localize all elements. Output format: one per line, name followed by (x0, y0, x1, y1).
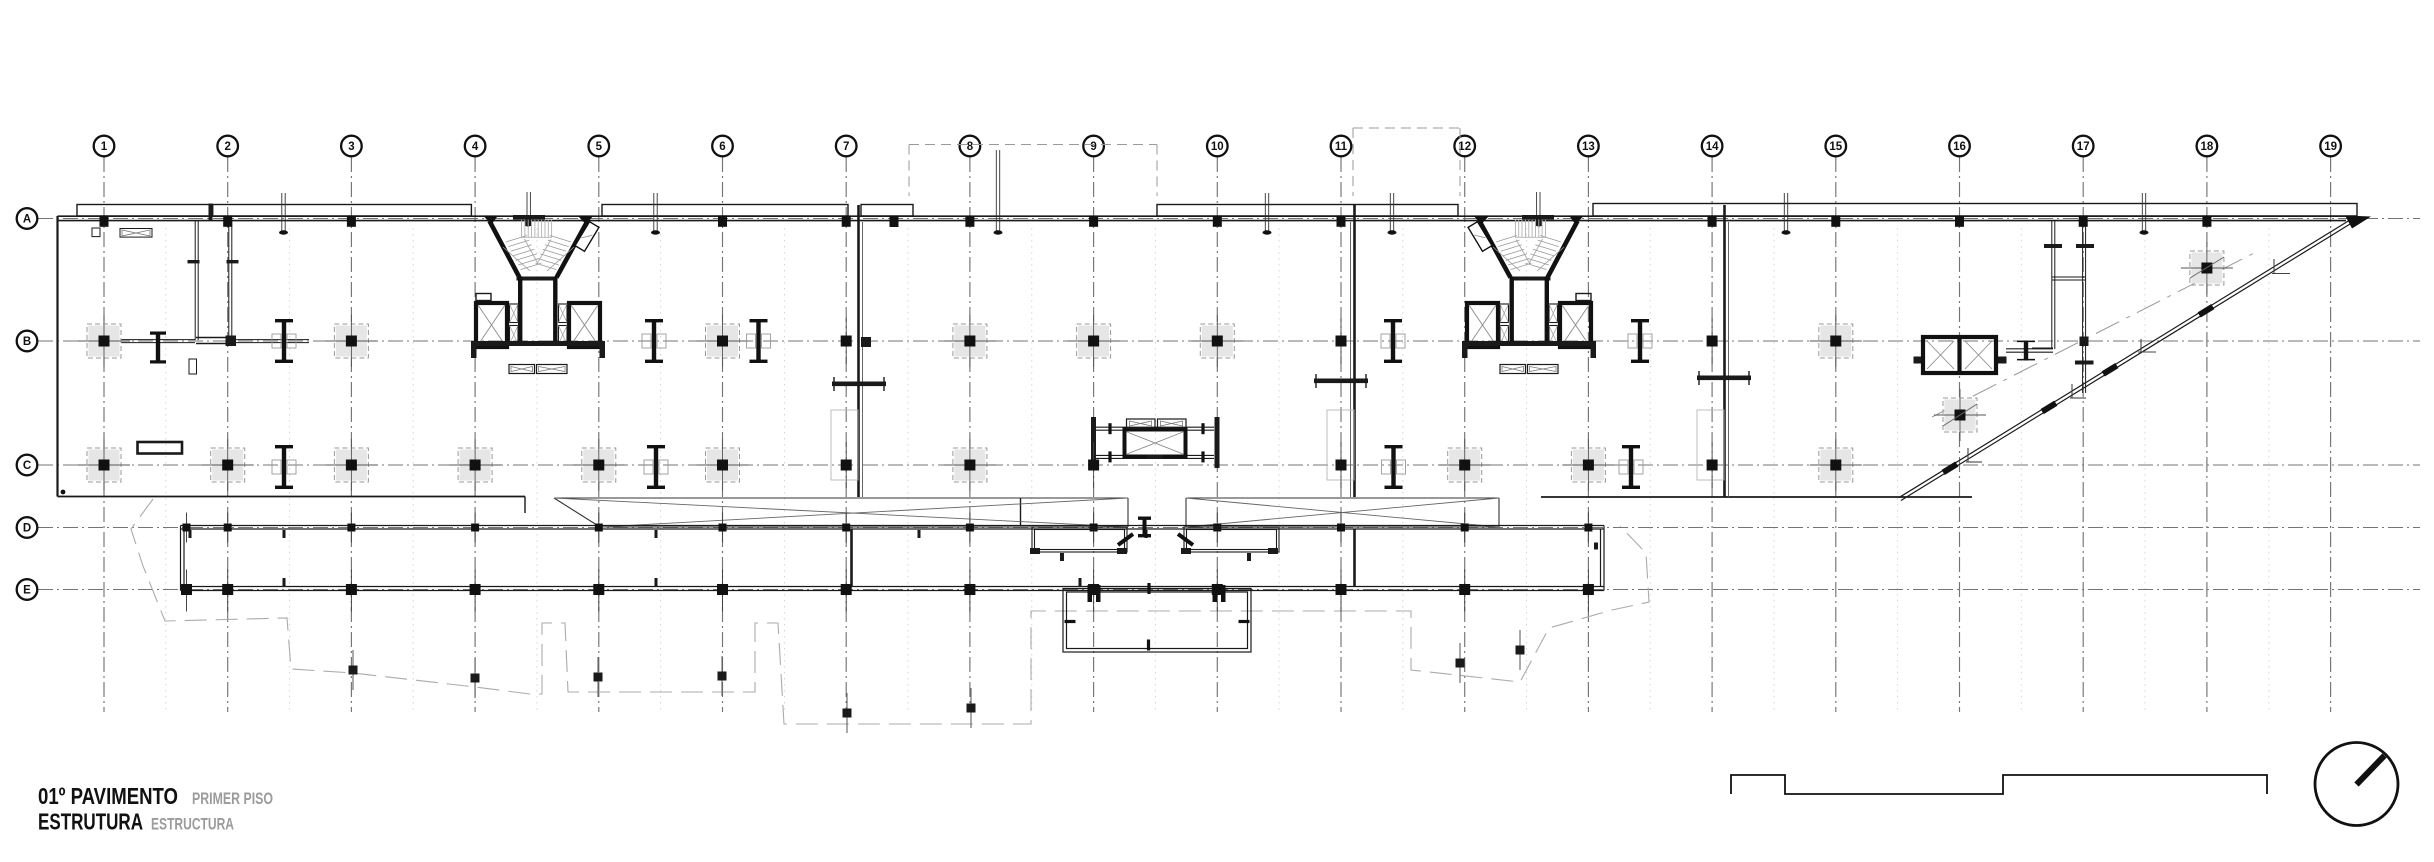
svg-text:16: 16 (1953, 141, 1966, 153)
svg-text:18: 18 (2201, 141, 2214, 153)
svg-text:2: 2 (224, 141, 230, 153)
svg-text:4: 4 (472, 141, 479, 153)
svg-text:10: 10 (1211, 141, 1224, 153)
svg-text:9: 9 (1090, 141, 1096, 153)
svg-text:11: 11 (1335, 141, 1348, 153)
svg-text:5: 5 (596, 141, 603, 153)
svg-text:PRIMER PISO: PRIMER PISO (192, 790, 273, 808)
svg-text:8: 8 (967, 141, 974, 153)
svg-text:19: 19 (2324, 141, 2337, 153)
svg-text:ESTRUTURA: ESTRUTURA (38, 809, 143, 835)
svg-text:6: 6 (719, 141, 725, 153)
svg-text:B: B (23, 336, 31, 348)
svg-text:E: E (23, 585, 31, 597)
svg-text:1: 1 (101, 141, 108, 153)
svg-text:C: C (23, 460, 31, 472)
svg-text:17: 17 (2077, 141, 2090, 153)
svg-text:D: D (23, 523, 31, 535)
svg-text:13: 13 (1582, 141, 1595, 153)
svg-text:ESTRUCTURA: ESTRUCTURA (151, 816, 234, 834)
svg-text:3: 3 (348, 141, 354, 153)
svg-text:14: 14 (1706, 141, 1719, 153)
svg-text:A: A (23, 214, 31, 226)
svg-text:15: 15 (1829, 141, 1842, 153)
svg-text:01º PAVIMENTO: 01º PAVIMENTO (38, 783, 178, 809)
svg-text:7: 7 (843, 141, 849, 153)
